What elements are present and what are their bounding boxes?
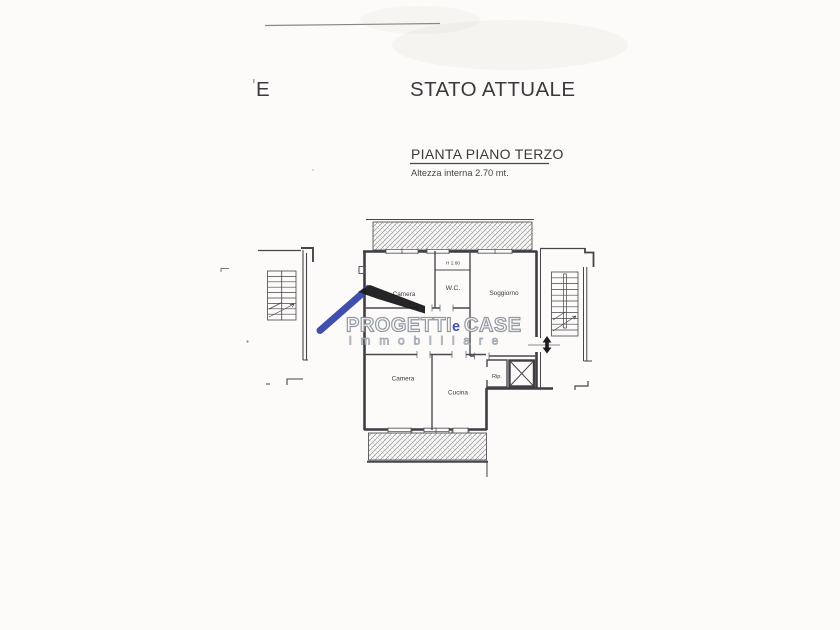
partial-letter: E <box>256 78 270 101</box>
room-label-cucina: Cucina <box>448 390 468 397</box>
room-label-camera-bottom: Camera <box>392 376 415 383</box>
page-title: STATO ATTUALE <box>410 78 575 101</box>
room-label-ripostiglio: Rip. <box>492 374 502 380</box>
scanned-floorplan-page: E STATO ATTUALE PIANTA PIANO TERZO Altez… <box>0 0 840 630</box>
room-label-wc: W.C. <box>446 285 461 292</box>
balcony-top <box>366 220 534 251</box>
floorplan-canvas: E STATO ATTUALE PIANTA PIANO TERZO Altez… <box>0 0 840 630</box>
room-label-wc-height: H 2.60 <box>446 261 460 267</box>
room-label-soggiorno: Soggiorno <box>489 290 519 297</box>
plan-note: Altezza interna 2.70 mt. <box>411 168 509 178</box>
plan-heading: PIANTA PIANO TERZO <box>411 146 564 162</box>
logo-word-immobiliare: immobiliare <box>349 334 507 348</box>
